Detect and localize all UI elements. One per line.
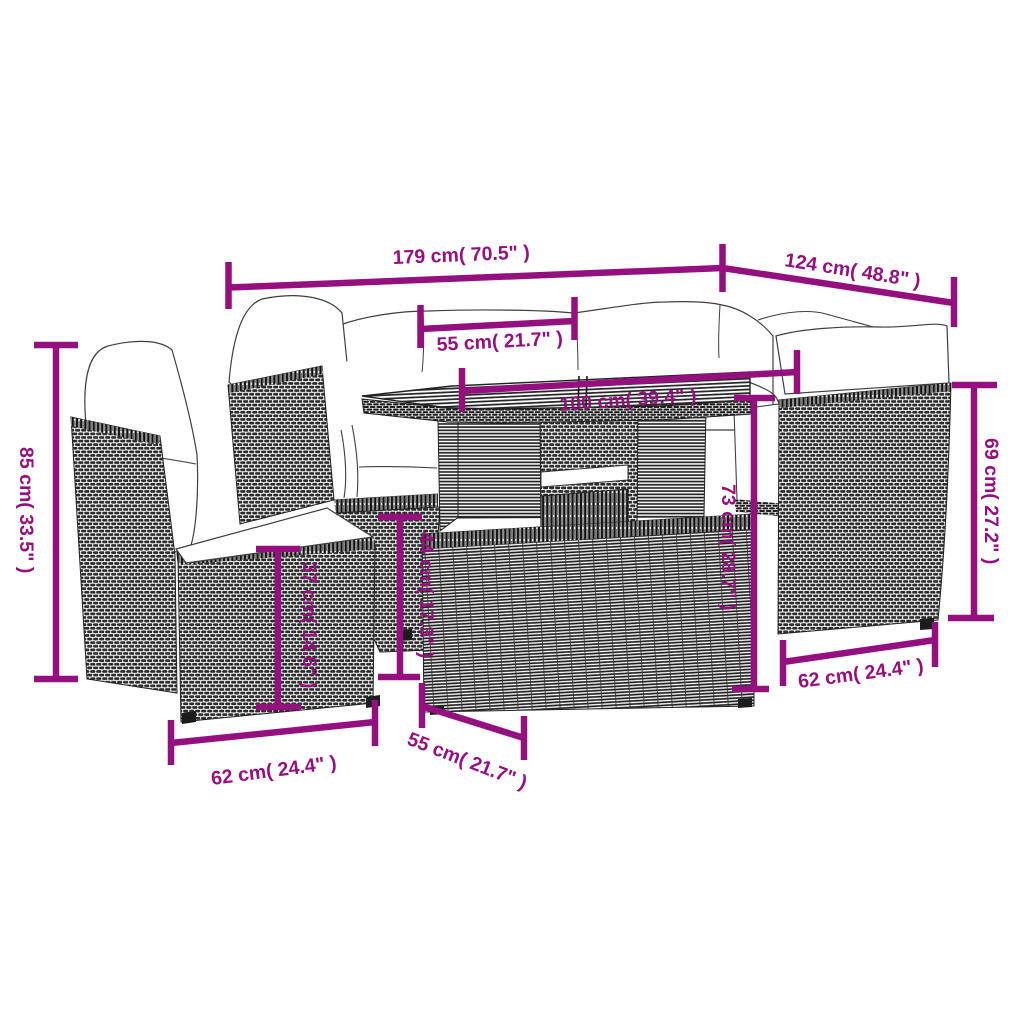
svg-text:69 cm( 27.2" ): 69 cm( 27.2" ) [980,438,1002,564]
svg-text:37 cm( 14.6" ): 37 cm( 14.6" ) [298,562,320,688]
svg-text:85 cm( 33.5" ): 85 cm( 33.5" ) [15,447,37,573]
svg-text:44 cm( 17.3" ): 44 cm( 17.3" ) [415,532,437,658]
svg-text:73 cm( 28.7" ): 73 cm( 28.7" ) [717,484,739,610]
